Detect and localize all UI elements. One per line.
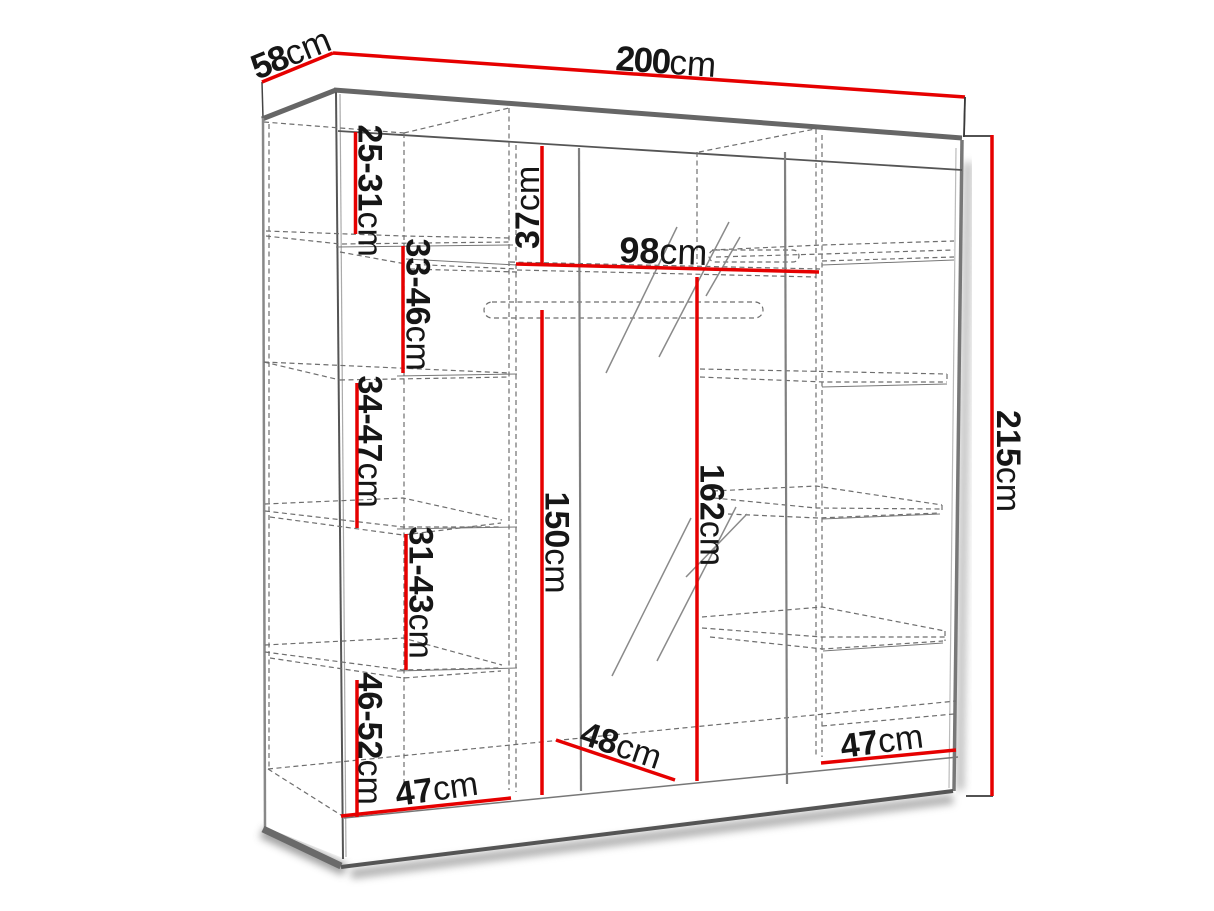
svg-text:162cm: 162cm: [693, 464, 731, 566]
svg-text:34-47cm: 34-47cm: [351, 376, 389, 508]
svg-text:33-46cm: 33-46cm: [399, 239, 437, 371]
svg-text:98cm: 98cm: [619, 229, 708, 273]
svg-text:37cm: 37cm: [509, 166, 547, 249]
svg-text:215cm: 215cm: [989, 410, 1027, 512]
svg-text:25-31cm: 25-31cm: [351, 125, 389, 257]
svg-text:31-43cm: 31-43cm: [402, 527, 440, 659]
svg-text:150cm: 150cm: [538, 492, 576, 594]
svg-text:200cm: 200cm: [614, 39, 717, 85]
svg-text:46-52cm: 46-52cm: [351, 673, 389, 805]
